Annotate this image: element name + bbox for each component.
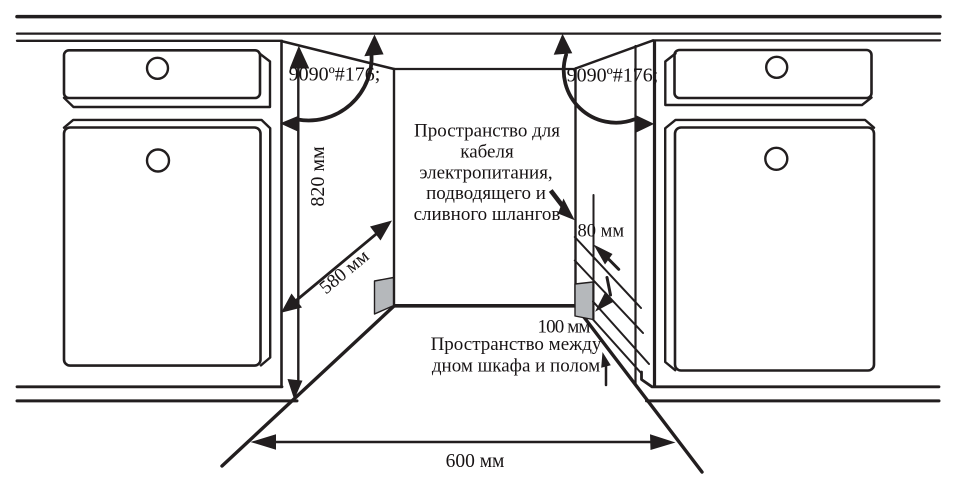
svg-text:электропитания,: электропитания, (419, 162, 552, 183)
svg-text:580 мм: 580 мм (316, 246, 374, 299)
svg-text:дном шкафа и полом: дном шкафа и полом (432, 356, 600, 377)
svg-text:подводящего и: подводящего и (426, 183, 546, 204)
svg-text:9090º#176;: 9090º#176; (567, 65, 659, 87)
svg-text:9090º#176;: 9090º#176; (289, 64, 381, 86)
svg-text:Пространство между: Пространство между (431, 334, 602, 355)
svg-text:600 мм: 600 мм (446, 451, 505, 472)
svg-text:сливного шлангов: сливного шлангов (414, 204, 561, 225)
svg-text:Пространство для: Пространство для (414, 121, 560, 142)
svg-text:820 мм: 820 мм (307, 146, 329, 207)
svg-text:кабеля: кабеля (460, 141, 514, 162)
svg-text:80 мм: 80 мм (578, 221, 625, 241)
